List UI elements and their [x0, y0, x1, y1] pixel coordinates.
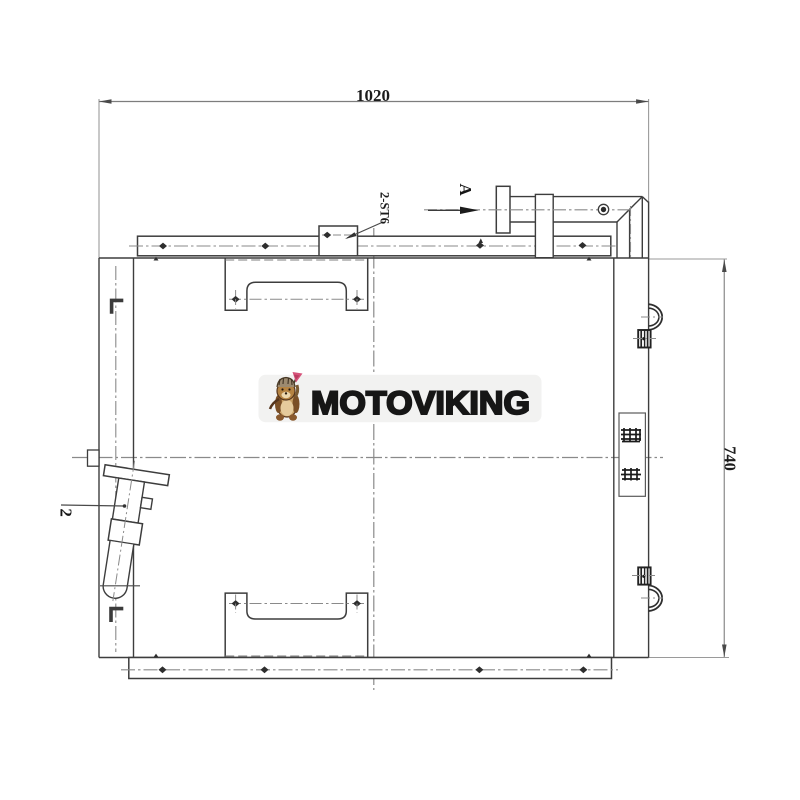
svg-text:1020: 1020: [356, 86, 390, 105]
svg-text:2: 2: [56, 508, 75, 517]
svg-text:A: A: [456, 184, 475, 197]
svg-text:2-ST6: 2-ST6: [377, 192, 391, 224]
svg-text:740: 740: [721, 446, 740, 471]
svg-text:MOTOVIKING: MOTOVIKING: [311, 385, 530, 421]
